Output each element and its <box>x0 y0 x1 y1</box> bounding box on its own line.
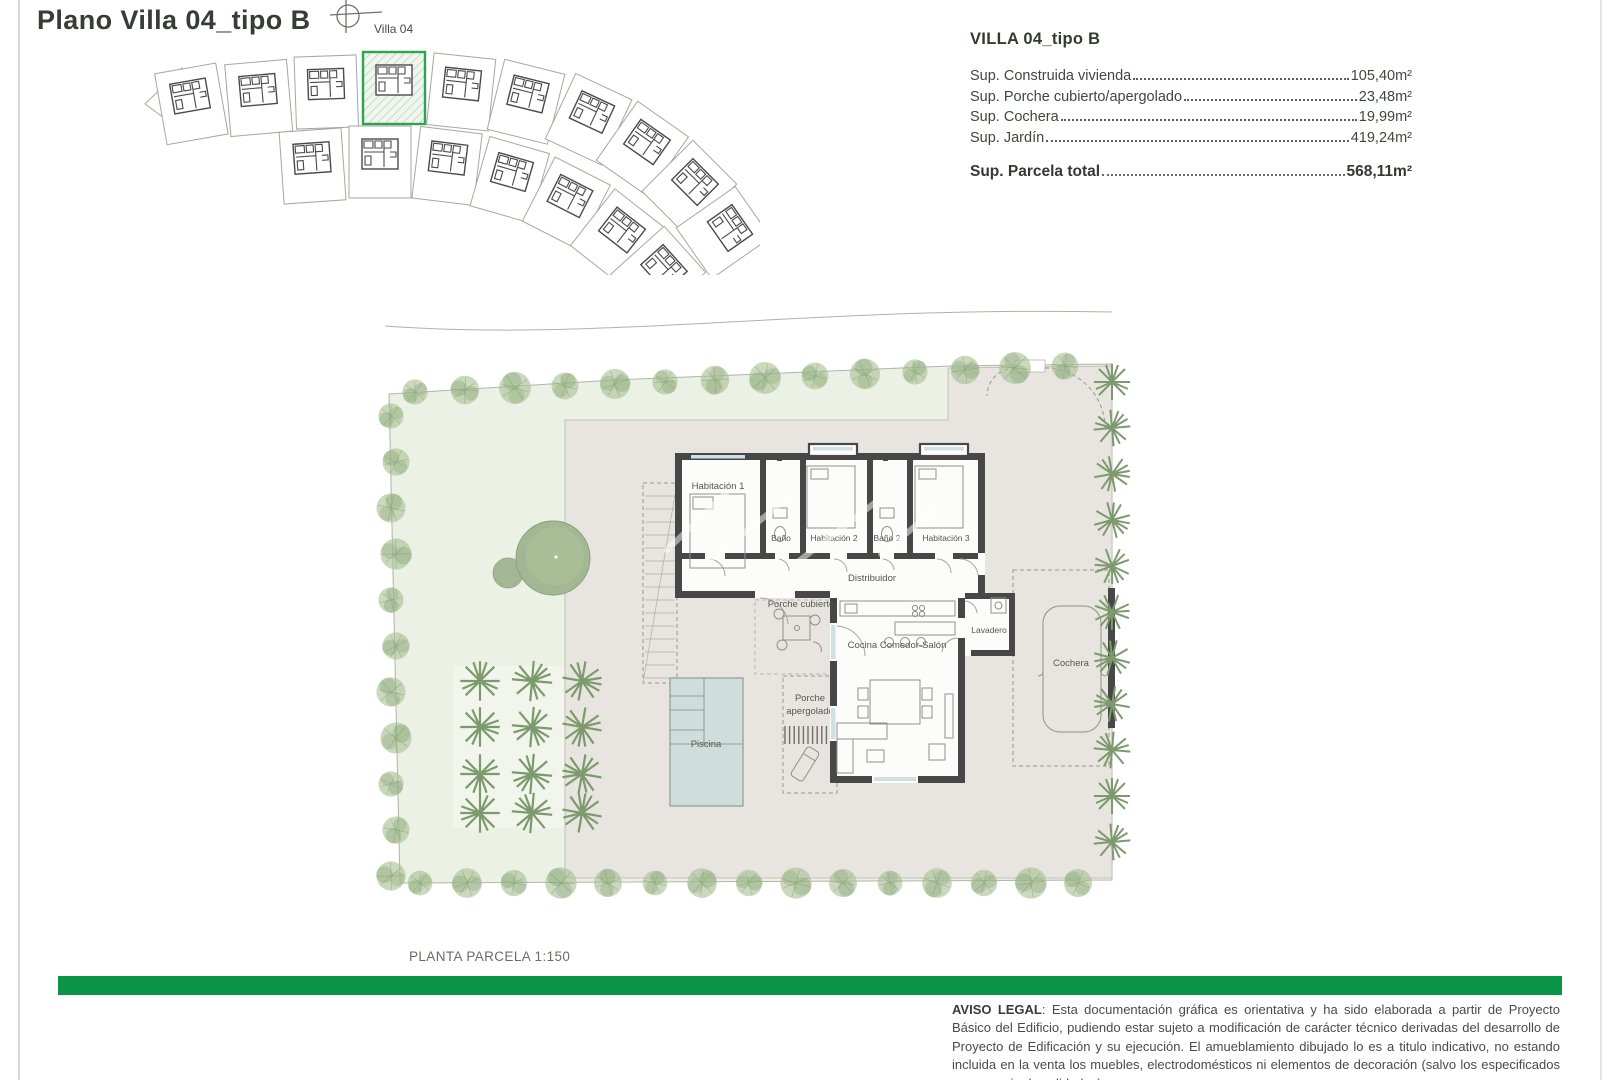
room-label-piscina: Piscina <box>691 739 722 750</box>
room-label-cocina: Cocina Comedor-Salón <box>848 640 947 651</box>
parcel-plan: Piscina Porche apergolado Porche cubiert… <box>375 298 1145 920</box>
footer-accent-bar <box>58 976 1562 995</box>
spec-row: Sup. Jardín 419,24m² <box>970 128 1412 149</box>
spec-total-value: 568,11m² <box>1347 162 1413 183</box>
room-label-distribuidor: Distribuidor <box>848 573 896 584</box>
legal-body: : Esta documentación gráfica es orientat… <box>952 1002 1560 1080</box>
spec-panel: VILLA 04_tipo B Sup. Construida vivienda… <box>970 30 1412 183</box>
spec-value: 19,99m² <box>1359 107 1412 128</box>
dot-leader <box>1046 140 1349 142</box>
spec-total-label: Sup. Parcela total <box>970 162 1100 183</box>
left-page-rule <box>18 0 20 1080</box>
spec-label: Sup. Porche cubierto/apergolado <box>970 87 1182 108</box>
room-label-lavadero: Lavadero <box>971 625 1007 635</box>
spec-label: Sup. Jardín <box>970 128 1044 149</box>
dot-leader <box>1102 174 1344 176</box>
site-plan: Villa 04 <box>120 0 760 275</box>
site-plots <box>155 52 760 275</box>
spec-total-row: Sup. Parcela total 568,11m² <box>970 162 1412 183</box>
dot-leader <box>1184 99 1357 101</box>
room-label-porche-1: Porche <box>795 693 825 704</box>
spec-label: Sup. Construida vivienda <box>970 66 1131 87</box>
room-label-habitacion1: Habitación 1 <box>692 481 745 492</box>
plan-sheet: Plano Villa 04_tipo B Villa 04 <box>0 0 1620 1080</box>
spec-value: 419,24m² <box>1351 128 1412 149</box>
room-label-cochera: Cochera <box>1053 658 1090 669</box>
room-label-bano1: Baño <box>771 533 791 543</box>
legal-notice: AVISO LEGAL: Esta documentación gráfica … <box>952 1001 1560 1080</box>
right-page-rule <box>1600 0 1602 1080</box>
spec-label: Sup. Cochera <box>970 107 1059 128</box>
plan-caption: PLANTA PARCELA 1:150 <box>409 949 570 964</box>
site-boundary-line <box>385 311 1112 330</box>
spec-row: Sup. Porche cubierto/apergolado 23,48m² <box>970 87 1412 108</box>
spec-value: 105,40m² <box>1351 66 1412 87</box>
legal-heading: AVISO LEGAL <box>952 1002 1042 1017</box>
room-label-porche-2: apergolado <box>786 706 834 717</box>
site-plan-villa-label: Villa 04 <box>374 22 413 36</box>
spec-row: Sup. Cochera 19,99m² <box>970 107 1412 128</box>
pool: Piscina <box>670 678 743 806</box>
dot-leader <box>1133 78 1349 80</box>
spec-row: Sup. Construida vivienda 105,40m² <box>970 66 1412 87</box>
spec-value: 23,48m² <box>1359 87 1412 108</box>
spec-title: VILLA 04_tipo B <box>970 30 1412 49</box>
room-label-habitacion3: Habitación 3 <box>922 533 970 543</box>
dot-leader <box>1061 119 1357 121</box>
site-plot-villa-04 <box>363 52 425 124</box>
